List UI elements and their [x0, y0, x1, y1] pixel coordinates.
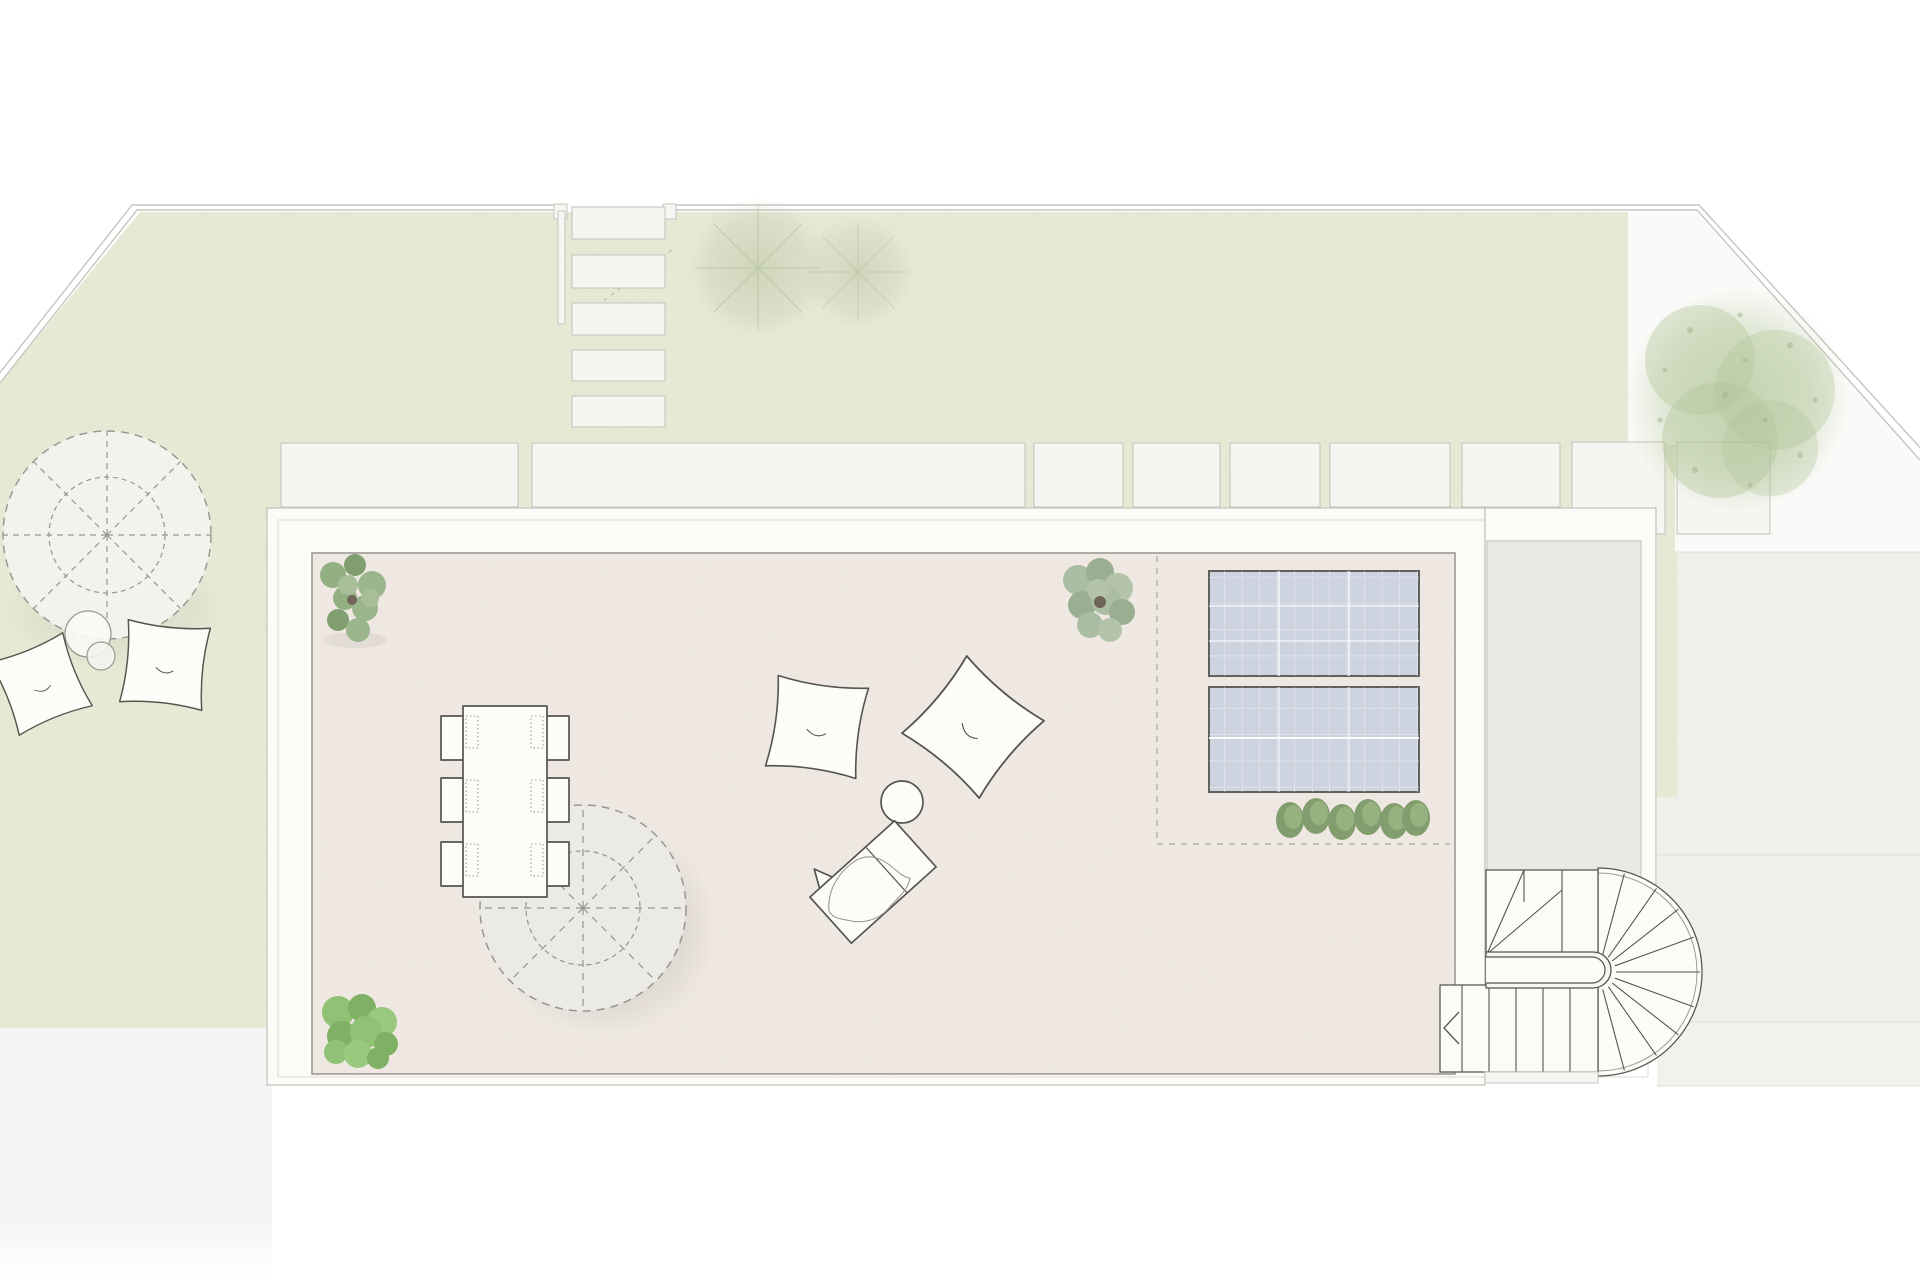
- dining-chair: [546, 778, 569, 822]
- stepping-stone: [572, 396, 665, 427]
- bean-bag-chair: [120, 620, 211, 711]
- garden-wall: [558, 211, 565, 324]
- roof-terrace-site-plan: [0, 0, 1920, 1280]
- stair-landing: [1485, 1072, 1598, 1083]
- solar-panel: [1209, 571, 1419, 676]
- plan-canvas: [0, 0, 1920, 1280]
- large-tree: [1625, 288, 1849, 512]
- dining-chair: [546, 842, 569, 886]
- paver-slab: [1330, 443, 1450, 507]
- dining-chair: [546, 716, 569, 760]
- stepping-stone: [572, 303, 665, 335]
- stepping-stone: [572, 350, 665, 381]
- paver-slab: [1034, 443, 1123, 507]
- paver-slab: [532, 443, 1025, 507]
- gravel-area-bottom-left: [0, 1028, 272, 1280]
- garden-parasol: [3, 431, 211, 639]
- sketch-tree-faint: [802, 216, 914, 328]
- coffee-table: [881, 781, 923, 823]
- paver-slab: [1230, 443, 1320, 507]
- stair-handrail: [1486, 952, 1611, 988]
- stepping-stone: [572, 207, 665, 239]
- paver-slab: [281, 443, 518, 507]
- dining-chair: [441, 716, 464, 760]
- paver-slab: [1462, 443, 1560, 507]
- garden-side-table: [87, 642, 115, 670]
- stair-upper-flight: [1486, 870, 1598, 957]
- dining-table: [463, 706, 547, 897]
- stair-lower-flight: [1440, 985, 1598, 1072]
- driveway-court-lower: [1657, 1020, 1920, 1086]
- dining-chair: [441, 778, 464, 822]
- solar-panel: [1209, 687, 1419, 792]
- dining-chair: [441, 842, 464, 886]
- bean-bag-chair: [765, 675, 868, 778]
- paver-slab: [1133, 443, 1220, 507]
- stepping-stone: [572, 255, 665, 288]
